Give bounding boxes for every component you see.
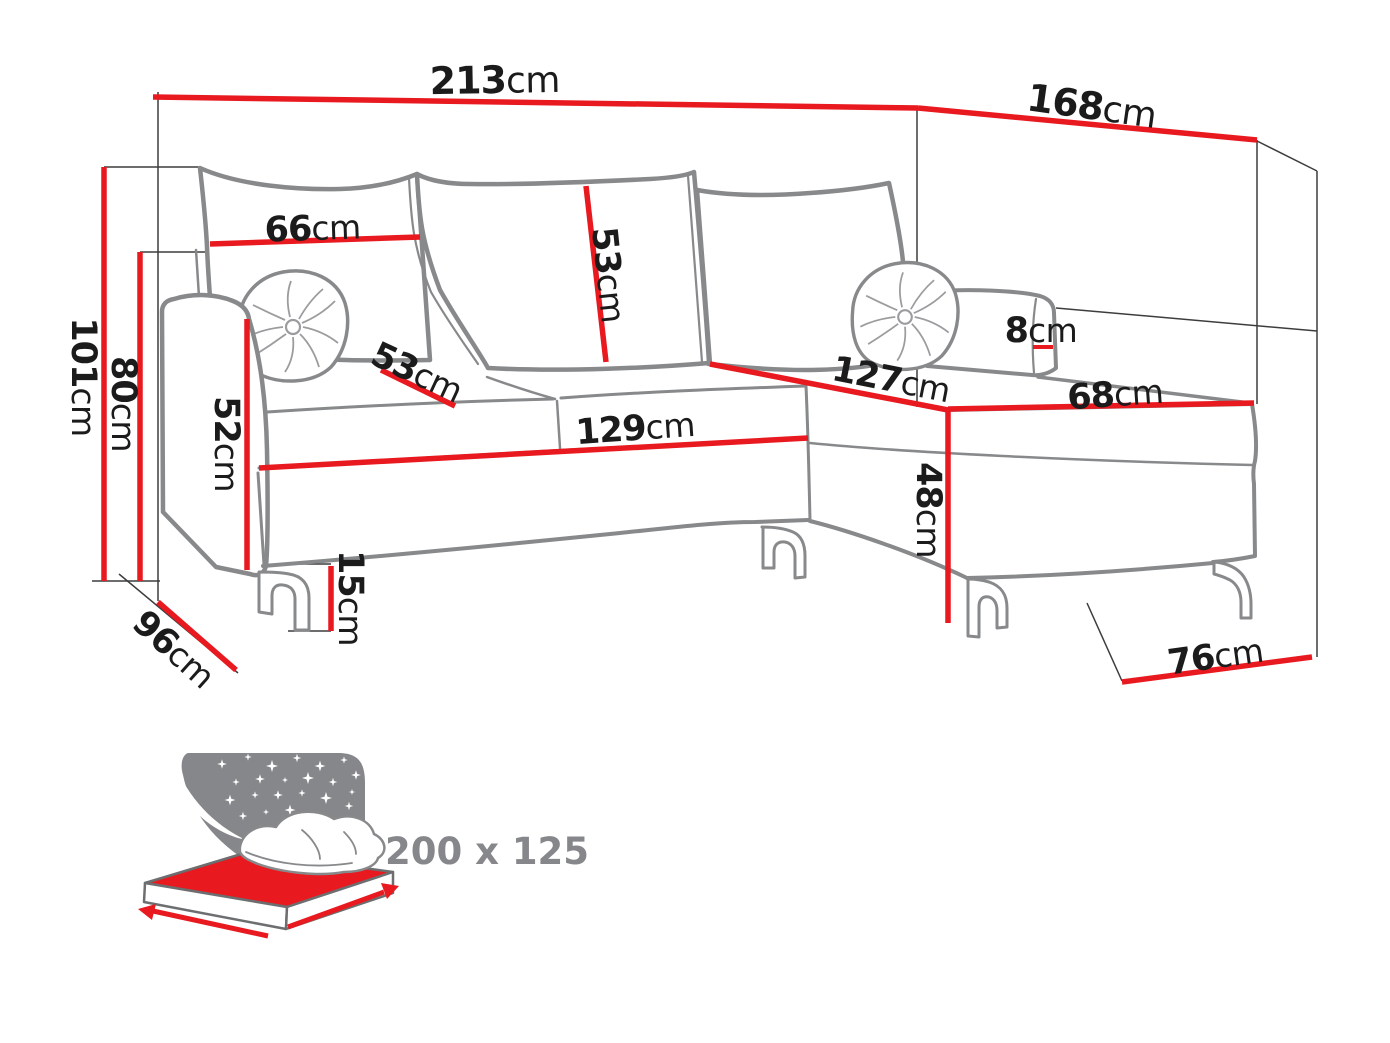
label-armrest-height: 52cm: [206, 396, 246, 492]
label-back-height: 80cm: [103, 356, 143, 452]
leg-chaise-rear: [1214, 562, 1251, 618]
sofa-bed-function-icon: [138, 753, 399, 936]
label-back-cushion-width: 66cm: [264, 207, 361, 250]
label-chaise-height: 48cm: [908, 462, 948, 558]
leg-front-left: [259, 572, 309, 630]
label-total-width: 213cm: [429, 57, 560, 103]
sofa-dimension-diagram: 213cm 168cm 101cm 80cm 66cm 53cm 8cm 53c…: [0, 0, 1390, 1043]
label-chaise-width: 68cm: [1066, 372, 1165, 419]
label-sleeping-area: 200 x 125: [385, 830, 589, 873]
label-overall-height: 101cm: [63, 317, 103, 436]
round-pillow-right: [852, 263, 958, 370]
sofa-legs: [259, 527, 1251, 637]
dim-line-front-width: [259, 438, 808, 468]
label-chaise-side-width: 76cm: [1165, 631, 1266, 684]
leg-chaise-front: [968, 579, 1007, 637]
label-total-depth: 168cm: [1024, 75, 1159, 137]
label-back-rail-width: 8cm: [1005, 311, 1078, 351]
leg-middle: [762, 527, 805, 578]
label-leg-height: 15cm: [330, 550, 370, 646]
